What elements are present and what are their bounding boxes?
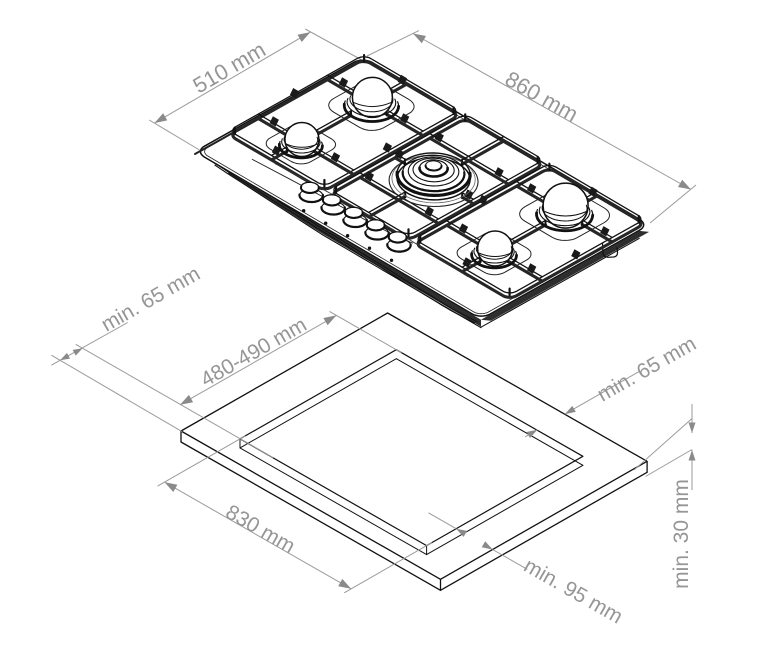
- svg-text:min. 30 mm: min. 30 mm: [670, 479, 693, 589]
